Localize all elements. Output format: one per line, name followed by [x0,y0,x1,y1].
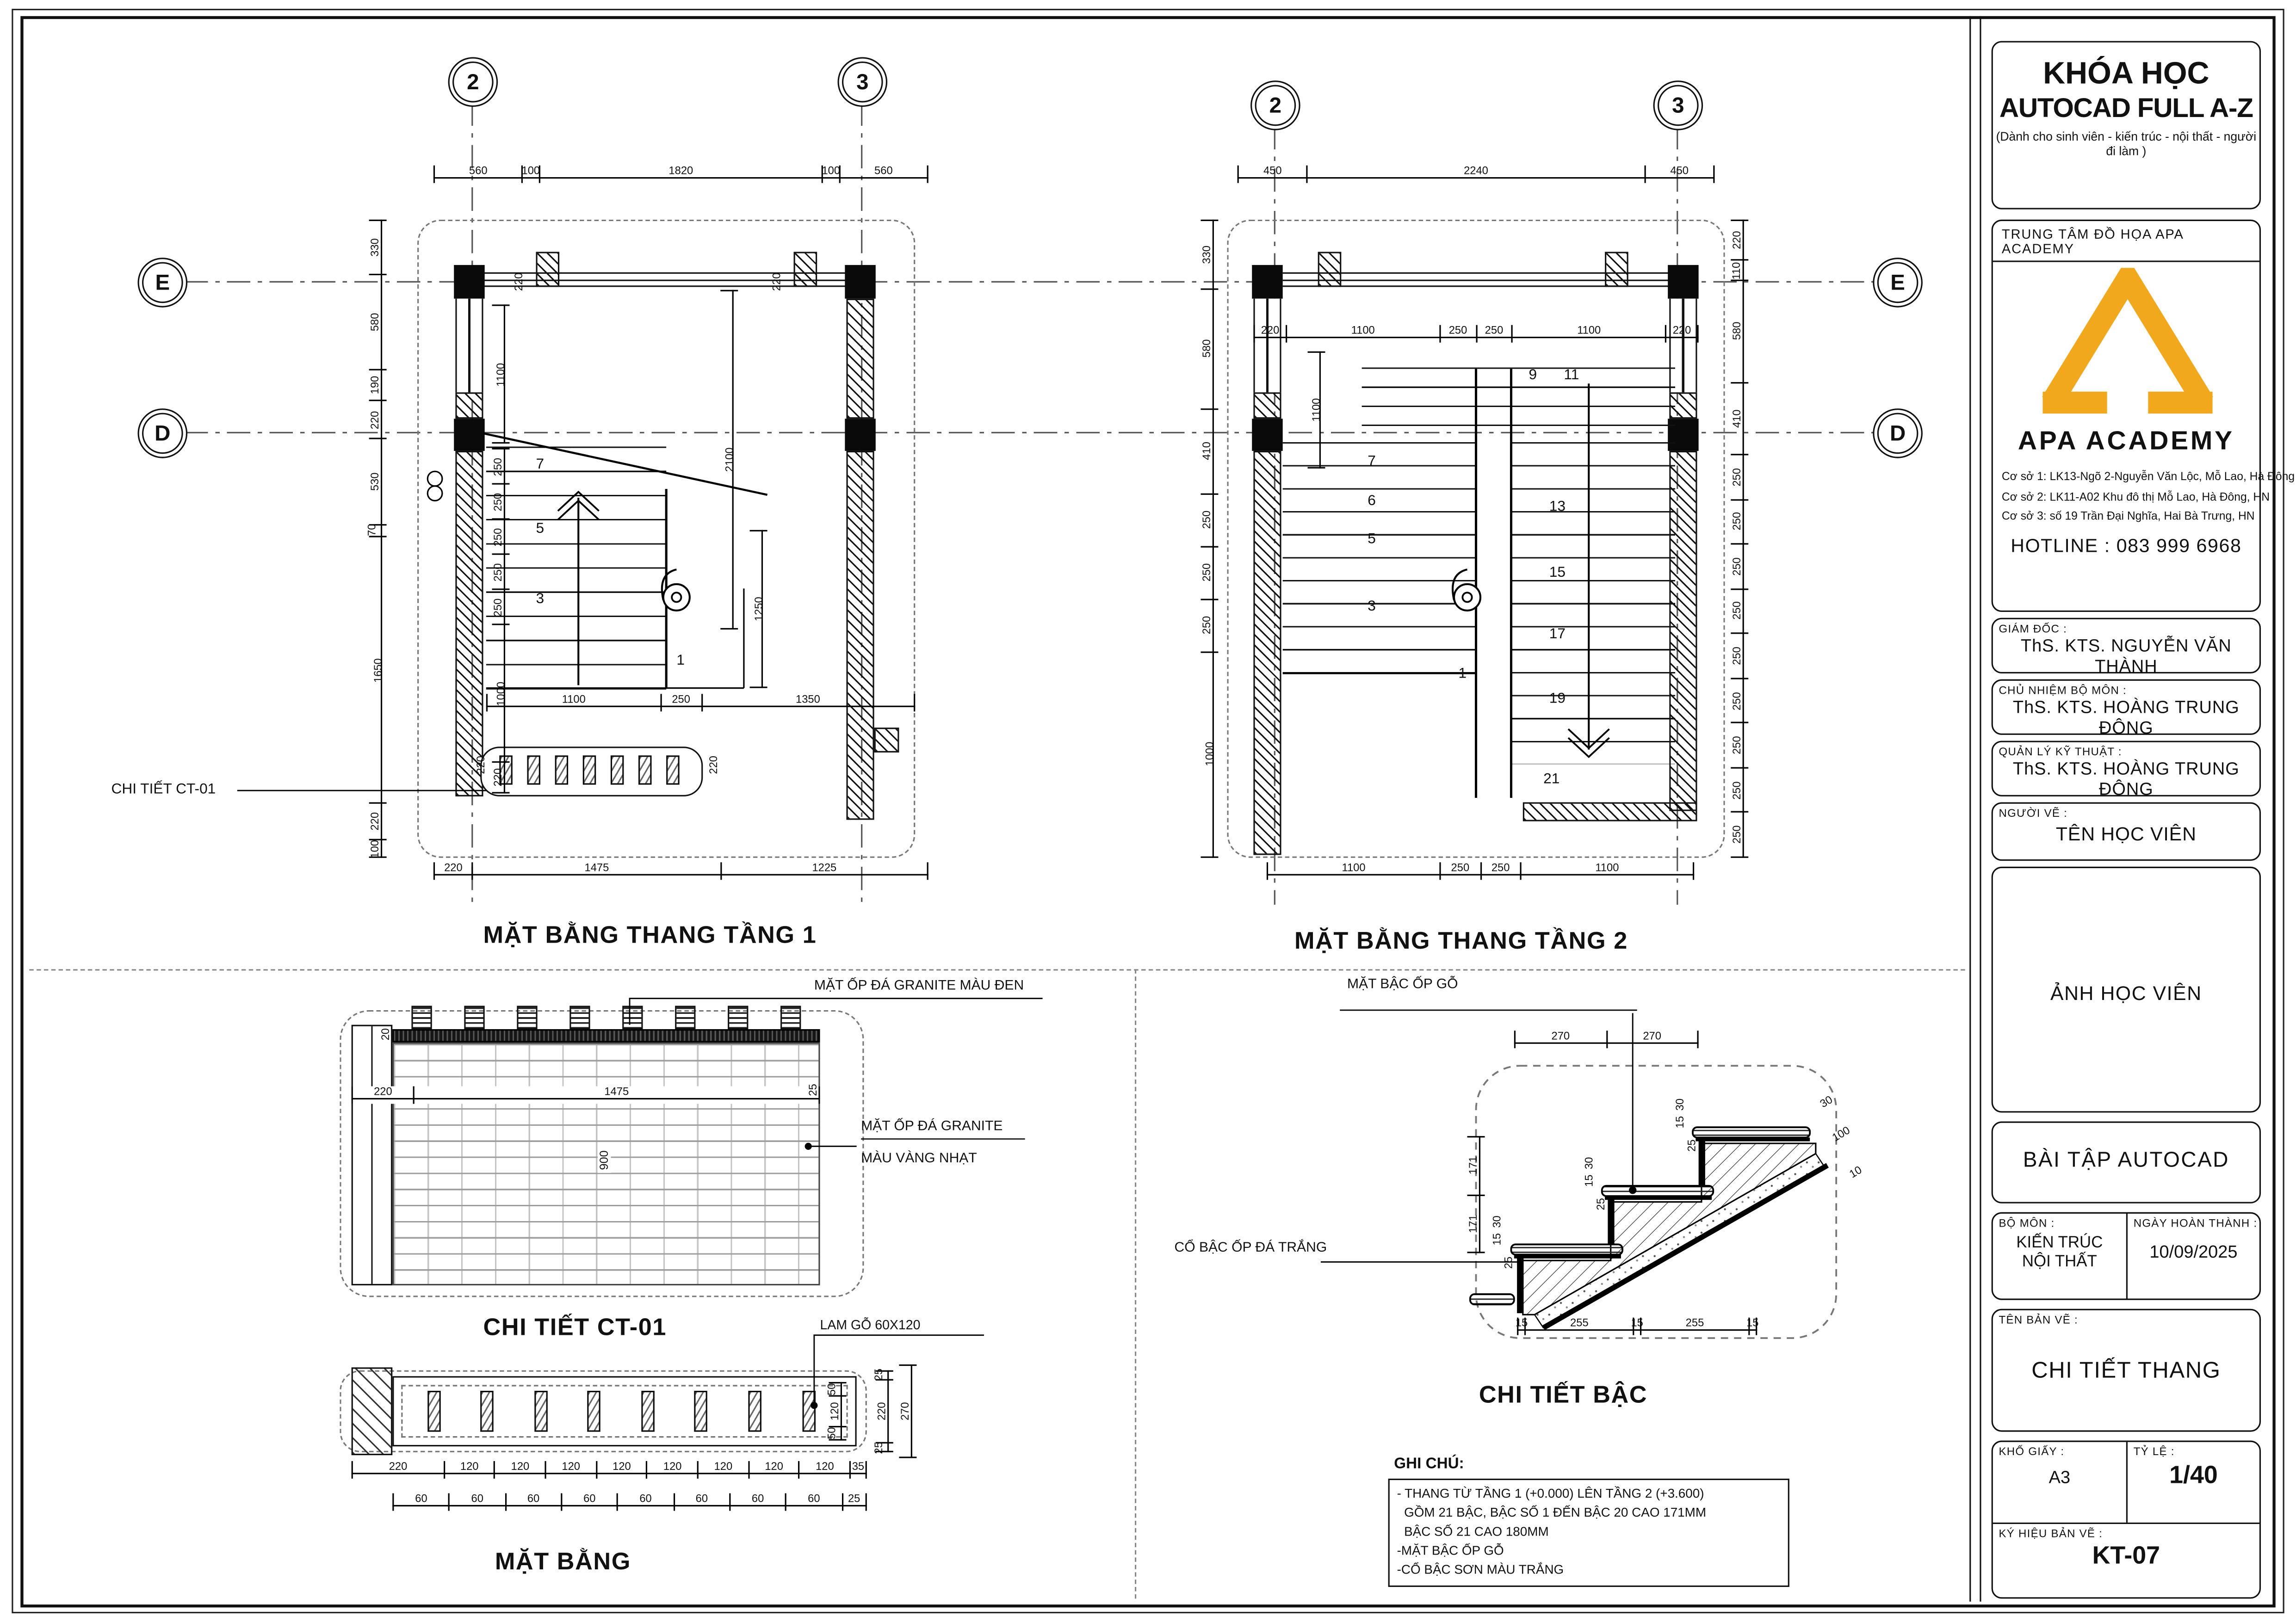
dim-label: 220 [493,768,504,786]
dim-label: 171 [1468,1215,1479,1233]
dim-segment: 250 [1439,325,1475,343]
nose-dim: 30 [1673,1098,1686,1111]
plan1-dim-2100: 2100 [720,290,738,629]
photo-placeholder: ẢNH HỌC VIÊN [1993,982,2259,1004]
dim-label: 70 [367,525,378,537]
tb-field-drawer: NGƯỜI VẼ : TÊN HỌC VIÊN [1992,802,2261,861]
dim-label: 530 [370,472,381,490]
dim-label: 220 [1732,231,1743,249]
dim-segment: 1100 [492,304,510,444]
tread-number: 3 [1368,599,1376,615]
dim-label: 110 [1731,261,1742,279]
tb-exercise-box: BÀI TẬP AUTOCAD [1992,1122,2261,1203]
dim-segment: 25 [841,1493,867,1511]
dim-segment: 120 [494,1461,545,1479]
tb-center-box: TRUNG TÂM ĐỒ HỌA APA ACADEMY APA ACADEMY… [1992,220,2261,612]
axis-label: 3 [1672,93,1684,118]
dim-segment: 250 [1731,543,1748,588]
dim-label: 120 [562,1461,580,1472]
scale-label: TỶ LỆ : [2128,1442,2259,1458]
axis-bubble-3: 3 [842,62,883,103]
dim-segment: 250 [492,448,510,483]
dim-label: 120 [663,1461,682,1472]
dim-segment: 100 [369,839,387,858]
dim-label: 2240 [1464,166,1488,177]
dim-segment: 60 [673,1493,729,1511]
dim-label: 450 [1670,166,1689,177]
dim-segment: 330 [369,220,387,274]
field-value: TÊN HỌC VIÊN [1993,823,2259,845]
dim-label: 1100 [1311,398,1322,422]
ct01-label-granite-black: MẶT ỐP ĐÁ GRANITE MÀU ĐEN [814,980,1024,996]
step-dims-top: 270270 [1514,1031,1699,1048]
step-leader-dot [1629,1186,1636,1194]
dim-segment: 580 [1731,280,1748,382]
code-value: KT-07 [1993,1542,2259,1571]
list-item: -MẶT BẬC ỐP GỖ [1397,1542,1781,1561]
dim-label: 250 [1491,862,1510,873]
nose-dim: 15 [1673,1116,1686,1128]
ct01-dim-25: 25 [806,1084,819,1096]
field-value: ThS. KTS. NGUYỄN VĂN THÀNH [1993,636,2259,677]
step-stone-nose [1696,1137,1810,1141]
dim-segment: 1820 [538,166,822,183]
tread-number: 21 [1543,771,1560,788]
tread-number: 3 [536,592,544,608]
dim-label: 50 [827,1383,838,1395]
paper-scale-row: KHỔ GIẤY : A3 TỶ LỆ : 1/40 [1993,1442,2259,1524]
exercise-title: BÀI TẬP AUTOCAD [1993,1149,2259,1173]
tread-number: 5 [536,521,544,537]
tread-number: 1 [676,653,685,669]
dim-label: 1225 [812,862,836,873]
plan1-dims-left: 330580190220530701650220100 [369,220,387,858]
dim-label: 250 [1485,325,1504,336]
dim-label: 1100 [1595,862,1619,873]
dim-label: 50 [827,1427,838,1439]
plan2-dims-bottom: 11002502501100 [1267,862,1694,880]
matbang-leader-dot [811,1402,817,1409]
plan1-dim-1100: 1100 [492,304,510,444]
matbang-title: MẶT BẰNG [495,1549,631,1577]
dim-segment: 1650 [369,536,387,802]
field-value: ThS. KTS. HOÀNG TRUNG ĐÔNG [1993,759,2259,800]
dim-label: 250 [493,457,504,475]
step-concrete [1523,1143,1816,1314]
dim-segment: 220 [369,401,387,437]
dim-segment: 250 [1479,862,1520,880]
dim-segment: 2100 [720,290,738,629]
drawing-sheet: 2 3 2 3 E D E D 5601001820100560 2201475… [0,0,2296,1623]
dim-segment: 1475 [413,1086,820,1104]
dim-segment: 270 [1606,1031,1699,1048]
dim-segment: 580 [369,274,387,368]
dim-label: 250 [1732,826,1743,844]
plan2-dim-1100: 1100 [1308,352,1325,469]
axis-label: D [1890,421,1906,446]
dim-label: 250 [493,528,504,546]
dim-label: 560 [874,166,893,177]
dim-segment: 220 [433,862,472,880]
dim-label: 580 [370,313,381,331]
dim-label: 255 [1686,1318,1704,1329]
plan1-dims-inner-bottom: 11002501350 [486,694,915,711]
axis-bubble-E: E [1877,262,1918,303]
dim-label: 100 [370,839,381,858]
plan2-dims-top: 4502240450 [1238,166,1715,183]
dim-label: 250 [1201,511,1213,530]
dim-segment: 1100 [486,694,660,711]
dim-label: 120 [511,1461,530,1472]
step-tread-wood [1693,1127,1810,1137]
dim-label: 1100 [1577,325,1601,336]
dim-label: 250 [1732,736,1743,755]
step-dims-bottom: 152551525515 [1517,1318,1757,1335]
dim-segment: 250 [1201,546,1218,599]
drawing-name-label: TÊN BẢN VẼ : [1993,1310,2259,1327]
dim-segment: 220 [352,1461,444,1479]
axis-label: 2 [467,69,479,94]
ct01-dim-900: 900 [598,1148,611,1173]
dim-label: 25 [873,1441,885,1453]
axis-bubble-E: E [142,262,183,303]
dim-segment: 250 [492,483,510,518]
dim-label: 171 [1468,1156,1479,1175]
dim-segment: 120 [798,1461,849,1479]
nose-dim: 25 [1502,1257,1515,1269]
dim-segment: 220 [352,1086,413,1104]
nose-dim: 15 [1490,1233,1503,1245]
plan1-section-mark [427,486,442,501]
dim-segment: 60 [392,1493,448,1511]
dim-label: 120 [816,1461,834,1472]
dim-segment: 1350 [701,694,916,711]
dim-segment: 450 [1238,166,1306,183]
plan1-slat [638,755,651,784]
field-label: NGƯỜI VẼ : [1993,804,2259,820]
axis-bubble-3: 3 [1658,85,1699,126]
dim-label: 100 [522,166,540,177]
axis-bubble-2: 2 [1255,85,1296,126]
dim-label: 1100 [1342,862,1366,873]
dim-label: 250 [1732,557,1743,576]
dim-label: 270 [900,1402,911,1420]
dim-label: 250 [1201,564,1213,582]
dim-segment: 250 [1731,722,1748,767]
dim-segment: 110 [1731,259,1748,279]
dim-label: 1100 [495,362,507,386]
scale-cell: TỶ LỆ : 1/40 [2128,1442,2259,1523]
plan1-band-dim: 220 [707,756,720,774]
date-cell: NGÀY HOÀN THÀNH : 10/09/2025 [2128,1214,2259,1299]
plan1-wall-dim: 220 [512,272,525,291]
axis-bubble-D: D [1877,413,1918,454]
dim-label: 1350 [796,694,820,705]
dim-label: 270 [1552,1031,1570,1042]
dim-segment: 1225 [720,862,928,880]
plan1-dim-1250: 1250 [750,530,767,688]
matbang-dims-inner: 5012050 [829,1382,847,1441]
dim-segment: 270 [1514,1031,1606,1048]
matbang-dims-row2: 606060606060606025 [392,1493,867,1511]
dim-label: 250 [1732,512,1743,531]
step-stone-nose [1514,1255,1621,1259]
dim-label: 60 [415,1493,427,1505]
dim-segment: 330 [1201,220,1218,289]
dim-segment: 120 [545,1461,596,1479]
dim-segment: 250 [1731,588,1748,633]
dim-label: 120 [765,1461,783,1472]
dim-segment: 25 [876,1442,893,1452]
nose-dim: 25 [1685,1140,1698,1152]
dim-label: 25 [848,1493,860,1505]
dim-segment: 15 [1748,1318,1757,1335]
subject-cell: BỘ MÔN : KIẾN TRÚC NỘI THẤT [1993,1214,2128,1299]
date-value: 10/09/2025 [2128,1241,2259,1262]
dim-segment: 250 [492,589,510,624]
list-item: Cơ sở 2: LK11-A02 Khu đô thị Mỗ Lao, Hà … [2002,487,2295,506]
dim-label: 1250 [754,597,765,621]
dim-label: 1475 [585,862,609,873]
subject-value: KIẾN TRÚC NỘI THẤT [1993,1234,2126,1272]
plan1-handrail-spiral-center [672,592,681,602]
dim-segment: 60 [561,1493,617,1511]
tread-number: 6 [1368,494,1376,510]
tread-number: 15 [1549,565,1566,581]
dim-label: 220 [370,410,381,429]
dim-label: 15 [1746,1318,1758,1329]
plan2-handrail-spiral-center [1462,592,1472,602]
plan1-wall-dim: 220 [770,272,783,291]
dim-segment: 171 [1467,1136,1485,1194]
dim-segment: 171 [1467,1194,1485,1253]
dim-label: 330 [1201,246,1213,264]
dim-label: 250 [1732,647,1743,665]
dim-label: 250 [1732,781,1743,799]
dim-segment: 220 [369,802,387,839]
ct01-dims-width: 2201475 [352,1086,820,1104]
ct01-leader-dot [805,1143,812,1150]
step-label-stone-riser: CỔ BẬC ỐP ĐÁ TRẮNG [1174,1241,1327,1258]
plan2-dims-left: 3305804102502502501000 [1201,220,1218,858]
dim-segment: 450 [1644,166,1714,183]
dim-segment: 100 [822,166,839,183]
apa-logo [2037,268,2218,414]
dim-label: 250 [1732,602,1743,620]
dim-segment: 1100 [1520,862,1694,880]
paper-value: A3 [1993,1467,2126,1487]
scale-value: 1/40 [2128,1461,2259,1490]
dim-segment: 560 [839,166,928,183]
ct01-title: CHI TIẾT CT-01 [483,1314,667,1342]
dim-label: 410 [1732,409,1743,428]
dim-label: 1100 [1351,325,1375,336]
tread-number: 1 [1459,666,1467,682]
dim-segment: 560 [433,166,522,183]
dim-label: 1475 [604,1086,629,1098]
code-cell: KÝ HIỆU BẢN VẼ : KT-07 [1993,1524,2259,1571]
step-title: CHI TIẾT BẬC [1479,1382,1647,1410]
ct01-dim-20: 20 [379,1028,392,1040]
step-slab-layer [1535,1154,1825,1328]
tread-number: 13 [1549,499,1566,515]
dim-label: 250 [1451,862,1470,873]
dim-segment: 250 [660,694,701,711]
dim-segment: 190 [369,369,387,401]
tb-photo-box: ẢNH HỌC VIÊN [1992,867,2261,1113]
dim-label: 560 [469,166,488,177]
dim-segment: 250 [492,518,510,554]
plan2-dims-top-inner: 22011002502501100220 [1253,325,1698,343]
addresses: Cơ sở 1: LK13-Ngõ 2-Nguyễn Văn Lộc, Mỗ L… [2002,467,2295,526]
plan1-slat [527,755,540,784]
dim-label: 250 [1732,468,1743,486]
step-riser [1517,1258,1523,1313]
axis-label: 3 [856,69,868,94]
field-label: CHỦ NHIỆM BỘ MÔN : [1993,681,2259,697]
dim-label: 220 [370,812,381,831]
dim-segment: 255 [1640,1318,1748,1335]
field-value: ThS. KTS. HOÀNG TRUNG ĐÔNG [1993,697,2259,738]
dim-label: 220 [389,1461,408,1472]
dim-segment: 15 [1517,1318,1525,1335]
plan1-dims-bottom: 22014751225 [433,862,928,880]
tb-field-head: CHỦ NHIỆM BỘ MÔN : ThS. KTS. HOÀNG TRUNG… [1992,679,2261,735]
plan2-title: MẶT BẰNG THANG TẦNG 2 [1294,928,1628,956]
dim-segment: 1100 [1511,325,1665,343]
dim-label: 250 [672,694,690,705]
notes-box: - THANG TỪ TẦNG 1 (+0.000) LÊN TẦNG 2 (+… [1388,1479,1789,1587]
dim-segment: 120 [443,1461,494,1479]
dim-segment: 1000 [492,624,510,761]
tb-course-box: KHÓA HỌC AUTOCAD FULL A-Z (Dành cho sinh… [1992,41,2261,210]
dim-segment: 530 [369,437,387,524]
axis-label: 2 [1269,93,1281,118]
dim-segment: 60 [729,1493,785,1511]
dim-label: 220 [876,1402,887,1420]
center-name: TRUNG TÂM ĐỒ HỌA APA ACADEMY [1993,221,2259,262]
step-tread-wood [1602,1186,1714,1196]
matbang-label-lamgo: LAM GỖ 60X120 [820,1318,921,1333]
dim-label: 580 [1732,322,1743,340]
dim-segment: 220 [1665,325,1698,343]
dim-segment: 250 [1439,862,1479,880]
plan1-band-dim: 220 [474,756,487,774]
dim-label: 450 [1263,166,1282,177]
plan2-dims-right: 220110580410250250250250250250250250250 [1731,220,1748,858]
axis-bubble-2: 2 [452,62,494,103]
dim-segment: 120 [748,1461,799,1479]
dim-label: 330 [370,238,381,257]
ct01-leader-top [630,999,1043,1025]
step-label-wood-tread: MẶT BẬC ỐP GỖ [1347,978,1458,994]
apa-logo-text: APA ACADEMY [1993,426,2259,457]
dim-label: 410 [1201,442,1213,461]
dim-segment: 250 [1201,494,1218,546]
apa-logo-triangle [2051,278,2203,402]
dim-label: 220 [444,862,463,873]
tb-paper-scale-box: KHỔ GIẤY : A3 TỶ LỆ : 1/40 KÝ HIỆU BẢN V… [1992,1441,2261,1599]
nose-dim: 25 [1594,1198,1607,1210]
plan1-slat [666,755,679,784]
drawing-name-value: CHI TIẾT THANG [1993,1358,2259,1385]
course-subtitle: (Dành cho sinh viên - kiến trúc - nội th… [1993,129,2259,158]
dim-segment: 70 [369,524,387,536]
paper-cell: KHỔ GIẤY : A3 [1993,1442,2128,1523]
axis-label: D [155,421,170,446]
dim-segment: 250 [1731,454,1748,499]
plan1-slat [555,755,568,784]
plan1-slat [583,755,596,784]
tread-number: 7 [1368,454,1376,470]
tb-subject-row: BỘ MÔN : KIẾN TRÚC NỘI THẤT NGÀY HOÀN TH… [1992,1212,2261,1300]
dim-label: 1650 [373,658,384,682]
matbang-dim-270: 270 [899,1364,916,1458]
axis-label: E [1890,270,1905,295]
hotline: HOTLINE : 083 999 6968 [1993,534,2259,556]
axis-bubble-D: D [142,413,183,454]
dim-label: 120 [829,1402,841,1420]
dim-segment: 1100 [1285,325,1439,343]
matbang-dims-row1: 22012012012012012012012012035 [352,1461,867,1479]
ct01-label-granite-yellow: MÀU VÀNG NHẠT [861,1152,977,1168]
tread-number: 17 [1549,627,1566,643]
dim-segment: 250 [1731,678,1748,722]
field-label: QUẢN LÝ KỸ THUẬT : [1993,742,2259,759]
dim-segment: 1000 [1201,651,1218,858]
dim-label: 60 [583,1493,595,1505]
dim-segment: 120 [595,1461,646,1479]
dim-label: 250 [493,563,504,581]
tread-number: 7 [536,457,544,473]
field-label: GIÁM ĐỐC : [1993,619,2259,636]
dim-label: 250 [493,493,504,511]
plan1-slat [611,755,624,784]
paper-label: KHỔ GIẤY : [1993,1442,2126,1458]
date-label: NGÀY HOÀN THÀNH : [2128,1214,2259,1230]
dim-segment: 50 [829,1426,847,1440]
plan1-dims-risers: 2502502502502501000220 [492,448,510,794]
course-title-line2: AUTOCAD FULL A-Z [1993,92,2259,124]
dim-label: 1000 [1205,742,1216,767]
subject-label: BỘ MÔN : [1993,1214,2126,1230]
dim-label: 580 [1201,340,1213,358]
dim-segment: 580 [1201,289,1218,408]
plan1-title: MẶT BẰNG THANG TẦNG 1 [483,922,817,950]
dim-segment: 220 [492,761,510,794]
axis-label: E [155,270,170,295]
dim-label: 250 [1201,616,1213,635]
tb-drawing-name-box: TÊN BẢN VẼ : CHI TIẾT THANG [1992,1309,2261,1432]
dim-label: 60 [639,1493,651,1505]
dim-label: 60 [696,1493,708,1505]
dim-label: 60 [527,1493,539,1505]
plan1-callout-ct01: CHI TIẾT CT-01 [111,782,216,798]
dim-label: 120 [613,1461,631,1472]
nose-dim: 30 [1490,1216,1503,1228]
dim-label: 60 [808,1493,820,1505]
dim-label: 60 [471,1493,483,1505]
dim-label: 35 [852,1461,864,1472]
matbang-dims-right: 2522025 [876,1370,893,1452]
dim-segment: 1100 [1308,352,1325,469]
course-title-line1: KHÓA HỌC [1993,57,2259,92]
tread-number: 11 [1564,367,1579,383]
dim-segment: 220 [1731,220,1748,259]
nose-dim: 30 [1583,1157,1596,1169]
dim-segment: 100 [521,166,538,183]
dim-label: 1820 [668,166,693,177]
